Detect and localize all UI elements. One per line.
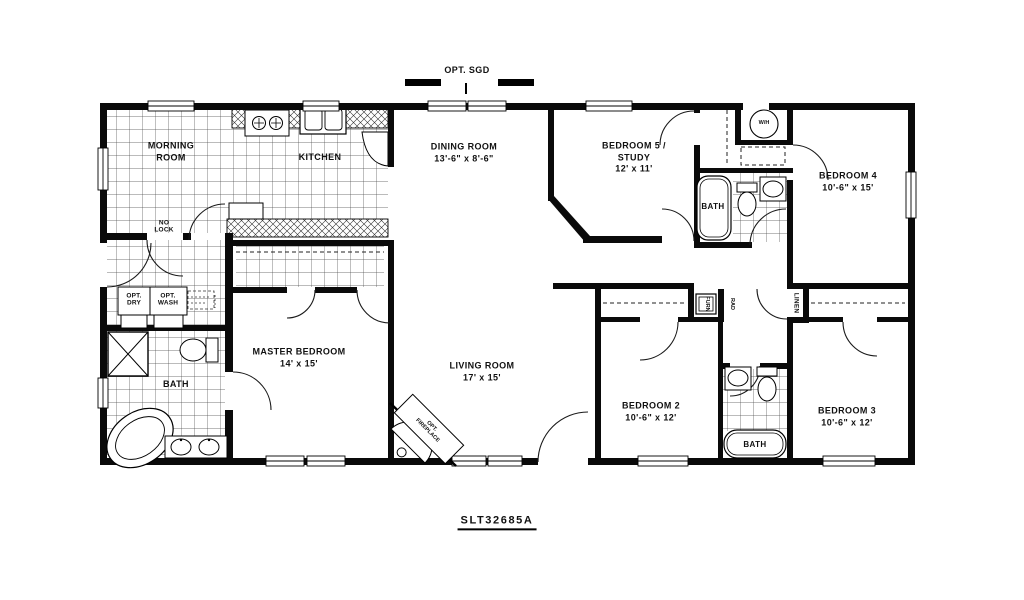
label-water-heater: W/H xyxy=(759,121,770,127)
room-label-morning-room: MORNING ROOM xyxy=(148,140,194,163)
label-opt-sgd: OPT. SGD xyxy=(444,65,489,77)
room-label-master-bedroom: MASTER BEDROOM 14' x 15' xyxy=(252,346,345,369)
floorplan-drawing xyxy=(0,0,1024,600)
room-label-hall-bath: BATH xyxy=(701,202,724,212)
label-furnace: FURN xyxy=(703,296,709,311)
label-opt-washer: OPT. WASH xyxy=(158,293,178,308)
rear-toilet-icon xyxy=(757,367,777,401)
room-label-bedroom-4: BEDROOM 4 10'-6" x 15' xyxy=(819,170,877,193)
rear-sink-icon xyxy=(725,367,751,390)
opt-sgd-marks xyxy=(405,79,534,94)
entry-door-gap xyxy=(538,458,588,465)
room-label-rear-bath: BATH xyxy=(743,440,766,450)
room-label-master-bath: BATH xyxy=(163,379,189,391)
model-number: SLT32685A xyxy=(458,513,537,530)
water-heater-door-gap xyxy=(743,103,769,110)
master-toilet-icon xyxy=(180,338,218,362)
hall-sink-icon xyxy=(760,177,786,201)
dishwasher-icon xyxy=(229,203,263,219)
hall-toilet-icon xyxy=(737,183,757,216)
label-rad: RAD xyxy=(728,298,734,310)
stove-icon xyxy=(245,110,289,136)
room-label-living-room: LIVING ROOM 17' x 15' xyxy=(450,360,515,383)
master-vanity-icon xyxy=(165,436,227,458)
room-label-bedroom-3: BEDROOM 3 10'-6" x 12' xyxy=(818,405,876,428)
label-opt-dryer: OPT. DRY xyxy=(126,293,141,308)
shower-icon xyxy=(108,332,148,376)
room-label-bedroom-2: BEDROOM 2 10'-6" x 12' xyxy=(622,400,680,423)
floorplan-page: OPT. SGD MORNING ROOM KITCHEN DINING ROO… xyxy=(0,0,1024,600)
linen-shelf xyxy=(741,147,785,165)
label-linen: LINEN xyxy=(792,293,799,314)
room-label-bedroom-5: BEDROOM 5 / STUDY 12' x 11' xyxy=(602,140,666,175)
room-label-dining-room: DINING ROOM 13'-6" x 8'-6" xyxy=(431,141,497,164)
label-no-lock: NO LOCK xyxy=(154,220,173,235)
side-door-gap xyxy=(100,243,107,287)
room-label-kitchen: KITCHEN xyxy=(299,152,342,164)
